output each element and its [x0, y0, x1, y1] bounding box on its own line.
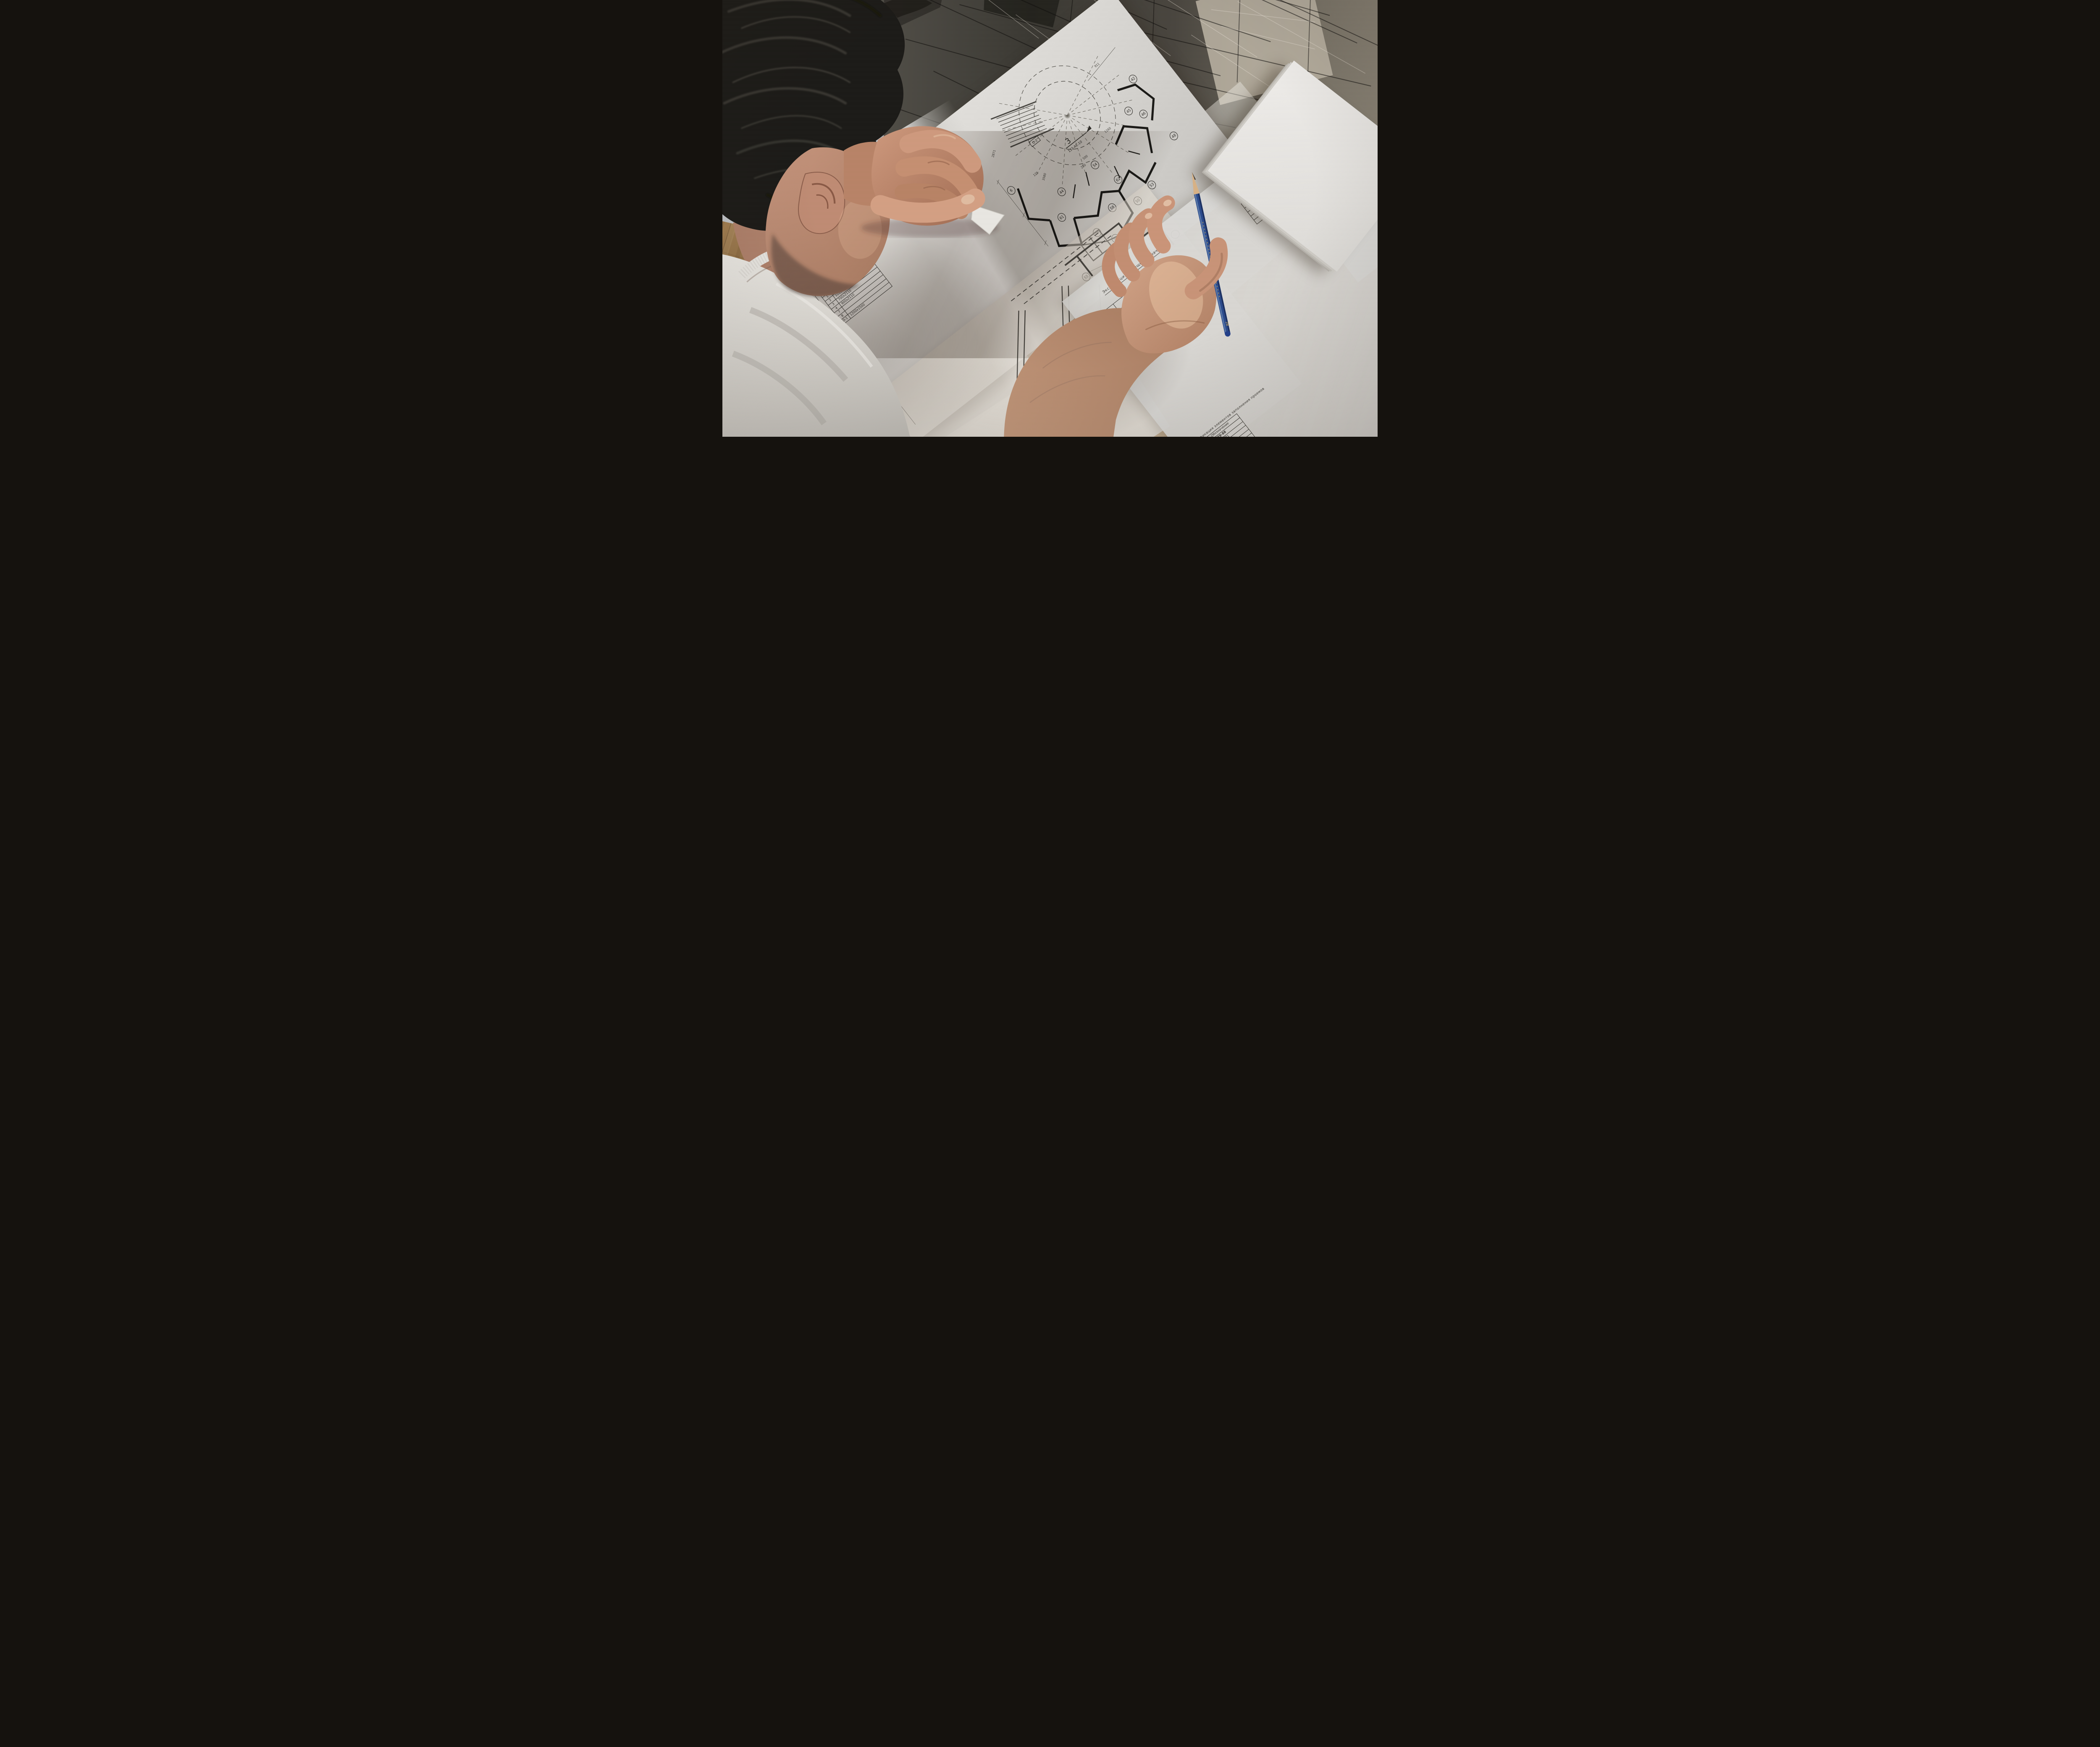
- index-finger: [1155, 203, 1168, 246]
- ear: [798, 172, 845, 233]
- room-marker: 45: [1126, 108, 1132, 115]
- left-hand: [844, 102, 1008, 238]
- room-marker: 48: [1171, 133, 1177, 139]
- door-tag: О-1: [1029, 136, 1040, 147]
- room-marker: 46: [1140, 111, 1147, 118]
- right-arm-and-pencil: 2B: [991, 162, 1266, 437]
- room-marker: 42: [1130, 76, 1136, 82]
- dimension-text: 500: [1081, 154, 1088, 161]
- middle-finger: [1136, 216, 1148, 260]
- pencil-wood-cone: [1192, 172, 1199, 195]
- dimension-text: 1160: [1103, 126, 1112, 134]
- pencil-end: [1225, 331, 1230, 336]
- photo-architect-blueprints: 15 14 К1 К2 К1 К2 1270 3260 3700 6950 2: [722, 0, 1378, 437]
